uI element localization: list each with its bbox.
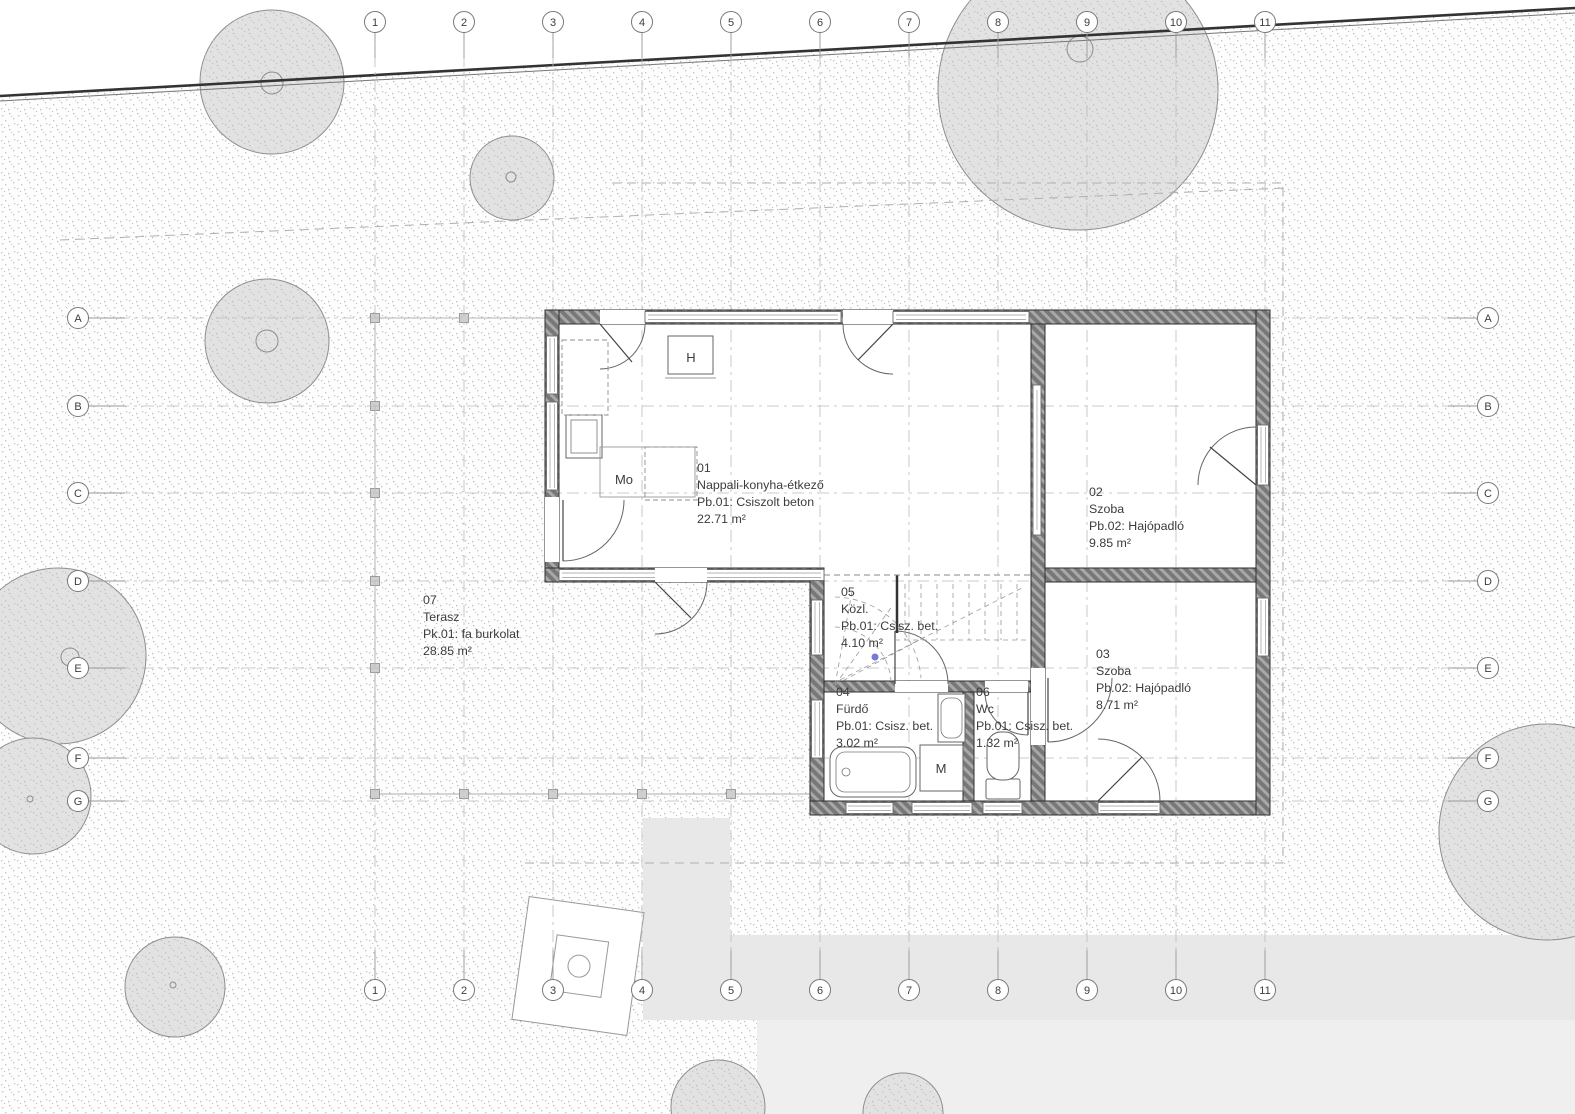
room-07-name: Terasz bbox=[423, 610, 460, 624]
tree-bottom-left bbox=[125, 937, 225, 1037]
grid-bubble-col-3-bottom-label: 3 bbox=[550, 985, 556, 997]
grid-bubble-col-5-bottom-label: 5 bbox=[728, 985, 734, 997]
room-02-finish: Pb.02: Hajópadló bbox=[1089, 519, 1184, 533]
room-05-id: 05 bbox=[841, 585, 855, 599]
grid-bubble-row-D-right-label: D bbox=[1484, 576, 1492, 588]
grid-bubble-col-4-bottom-label: 4 bbox=[639, 985, 645, 997]
room-07-id: 07 bbox=[423, 593, 437, 607]
grid-bubble-row-F-right-label: F bbox=[1485, 753, 1492, 765]
tree-left-middle bbox=[205, 279, 329, 403]
grid-bubble-col-10-top-label: 10 bbox=[1170, 17, 1182, 29]
room-05-finish: Pb.01: Csisz. bet. bbox=[841, 619, 938, 633]
site-plan-drawing: 11223344556677889910101111AABBCCDDEEFFGG… bbox=[0, 0, 1575, 1114]
grid-bubble-row-D-left-label: D bbox=[74, 576, 82, 588]
grid-bubble-col-9-top-label: 9 bbox=[1084, 17, 1090, 29]
grid-bubble-col-7-bottom-label: 7 bbox=[906, 985, 912, 997]
grid-bubble-row-E-right-label: E bbox=[1484, 663, 1491, 675]
grid-bubble-row-A-right-label: A bbox=[1484, 313, 1492, 325]
grid-bubble-col-2-top-label: 2 bbox=[461, 17, 467, 29]
grid-bubble-row-F-left-label: F bbox=[75, 753, 82, 765]
grid-bubble-col-6-top-label: 6 bbox=[817, 17, 823, 29]
grid-bubble-col-10-bottom-label: 10 bbox=[1170, 985, 1182, 997]
grid-bubble-col-2-bottom-label: 2 bbox=[461, 985, 467, 997]
grid-bubble-row-B-right-label: B bbox=[1484, 401, 1491, 413]
room-05-name: Közl. bbox=[841, 602, 869, 616]
utility-pad-structure bbox=[512, 897, 644, 1036]
room-02-name: Szoba bbox=[1089, 502, 1124, 516]
grid-bubble-row-G-right-label: G bbox=[1484, 796, 1493, 808]
grid-bubble-col-6-bottom-label: 6 bbox=[817, 985, 823, 997]
room-03-id: 03 bbox=[1096, 647, 1110, 661]
grid-bubble-row-C-left-label: C bbox=[74, 488, 82, 500]
room-06-area: 1.32 m² bbox=[976, 736, 1018, 750]
room-01-name: Nappali-konyha-étkező bbox=[697, 478, 824, 492]
tree-small-upper bbox=[470, 136, 554, 220]
room-06-name: Wc bbox=[976, 702, 994, 716]
grid-bubble-row-C-right-label: C bbox=[1484, 488, 1492, 500]
room-04-finish: Pb.01: Csisz. bet. bbox=[836, 719, 933, 733]
room-07-area: 28.85 m² bbox=[423, 644, 472, 658]
grid-bubble-col-1-top-label: 1 bbox=[372, 17, 378, 29]
grid-bubble-col-1-bottom-label: 1 bbox=[372, 985, 378, 997]
room-02-id: 02 bbox=[1089, 485, 1103, 499]
room-07-finish: Pk.01: fa burkolat bbox=[423, 627, 520, 641]
grid-bubble-row-A-left-label: A bbox=[74, 313, 82, 325]
bathtub bbox=[830, 747, 916, 797]
wall-room02-room03 bbox=[1045, 568, 1256, 582]
room-01-id: 01 bbox=[697, 461, 711, 475]
grid-bubble-col-11-bottom-label: 11 bbox=[1259, 985, 1270, 997]
grid-bubble-col-7-top-label: 7 bbox=[906, 17, 912, 29]
grid-bubble-col-3-top-label: 3 bbox=[550, 17, 556, 29]
room-03-finish: Pb.02: Hajópadló bbox=[1096, 681, 1191, 695]
room-03-name: Szoba bbox=[1096, 664, 1131, 678]
fridge-label: H bbox=[686, 350, 695, 365]
floor-plan-canvas: 11223344556677889910101111AABBCCDDEEFFGG… bbox=[0, 0, 1575, 1114]
grid-bubble-col-5-top-label: 5 bbox=[728, 17, 734, 29]
walkway-vertical bbox=[643, 818, 730, 1020]
room-02-area: 9.85 m² bbox=[1089, 536, 1131, 550]
toilet-tank bbox=[986, 779, 1020, 799]
walkway-horizontal bbox=[730, 935, 1575, 1020]
room-05-area: 4.10 m² bbox=[841, 636, 883, 650]
grid-bubble-col-8-top-label: 8 bbox=[995, 17, 1001, 29]
cooktop-box bbox=[566, 415, 602, 458]
grid-bubble-col-4-top-label: 4 bbox=[639, 17, 645, 29]
grid-bubble-col-8-bottom-label: 8 bbox=[995, 985, 1001, 997]
bath-cabinet bbox=[938, 694, 965, 742]
room-01-area: 22.71 m² bbox=[697, 512, 746, 526]
wall-east bbox=[1256, 310, 1270, 815]
room-01-finish: Pb.01: Csiszolt beton bbox=[697, 495, 814, 509]
grid-bubble-row-G-left-label: G bbox=[74, 796, 83, 808]
room-06-id: 06 bbox=[976, 685, 990, 699]
grid-bubble-col-9-bottom-label: 9 bbox=[1084, 985, 1090, 997]
grid-bubble-row-E-left-label: E bbox=[74, 663, 81, 675]
stair-marker-dot bbox=[872, 654, 879, 661]
room-03-area: 8.71 m² bbox=[1096, 698, 1138, 712]
room-04-id: 04 bbox=[836, 685, 850, 699]
sink-label: Mo bbox=[615, 472, 633, 487]
grid-bubble-col-11-top-label: 11 bbox=[1259, 17, 1270, 29]
room-04-area: 3.02 m² bbox=[836, 736, 878, 750]
room-06-finish: Pb.01: Csisz. bet. bbox=[976, 719, 1073, 733]
washing_machine-label: M bbox=[936, 761, 947, 776]
grid-bubble-row-B-left-label: B bbox=[74, 401, 81, 413]
room-04-name: Fürdő bbox=[836, 702, 868, 716]
